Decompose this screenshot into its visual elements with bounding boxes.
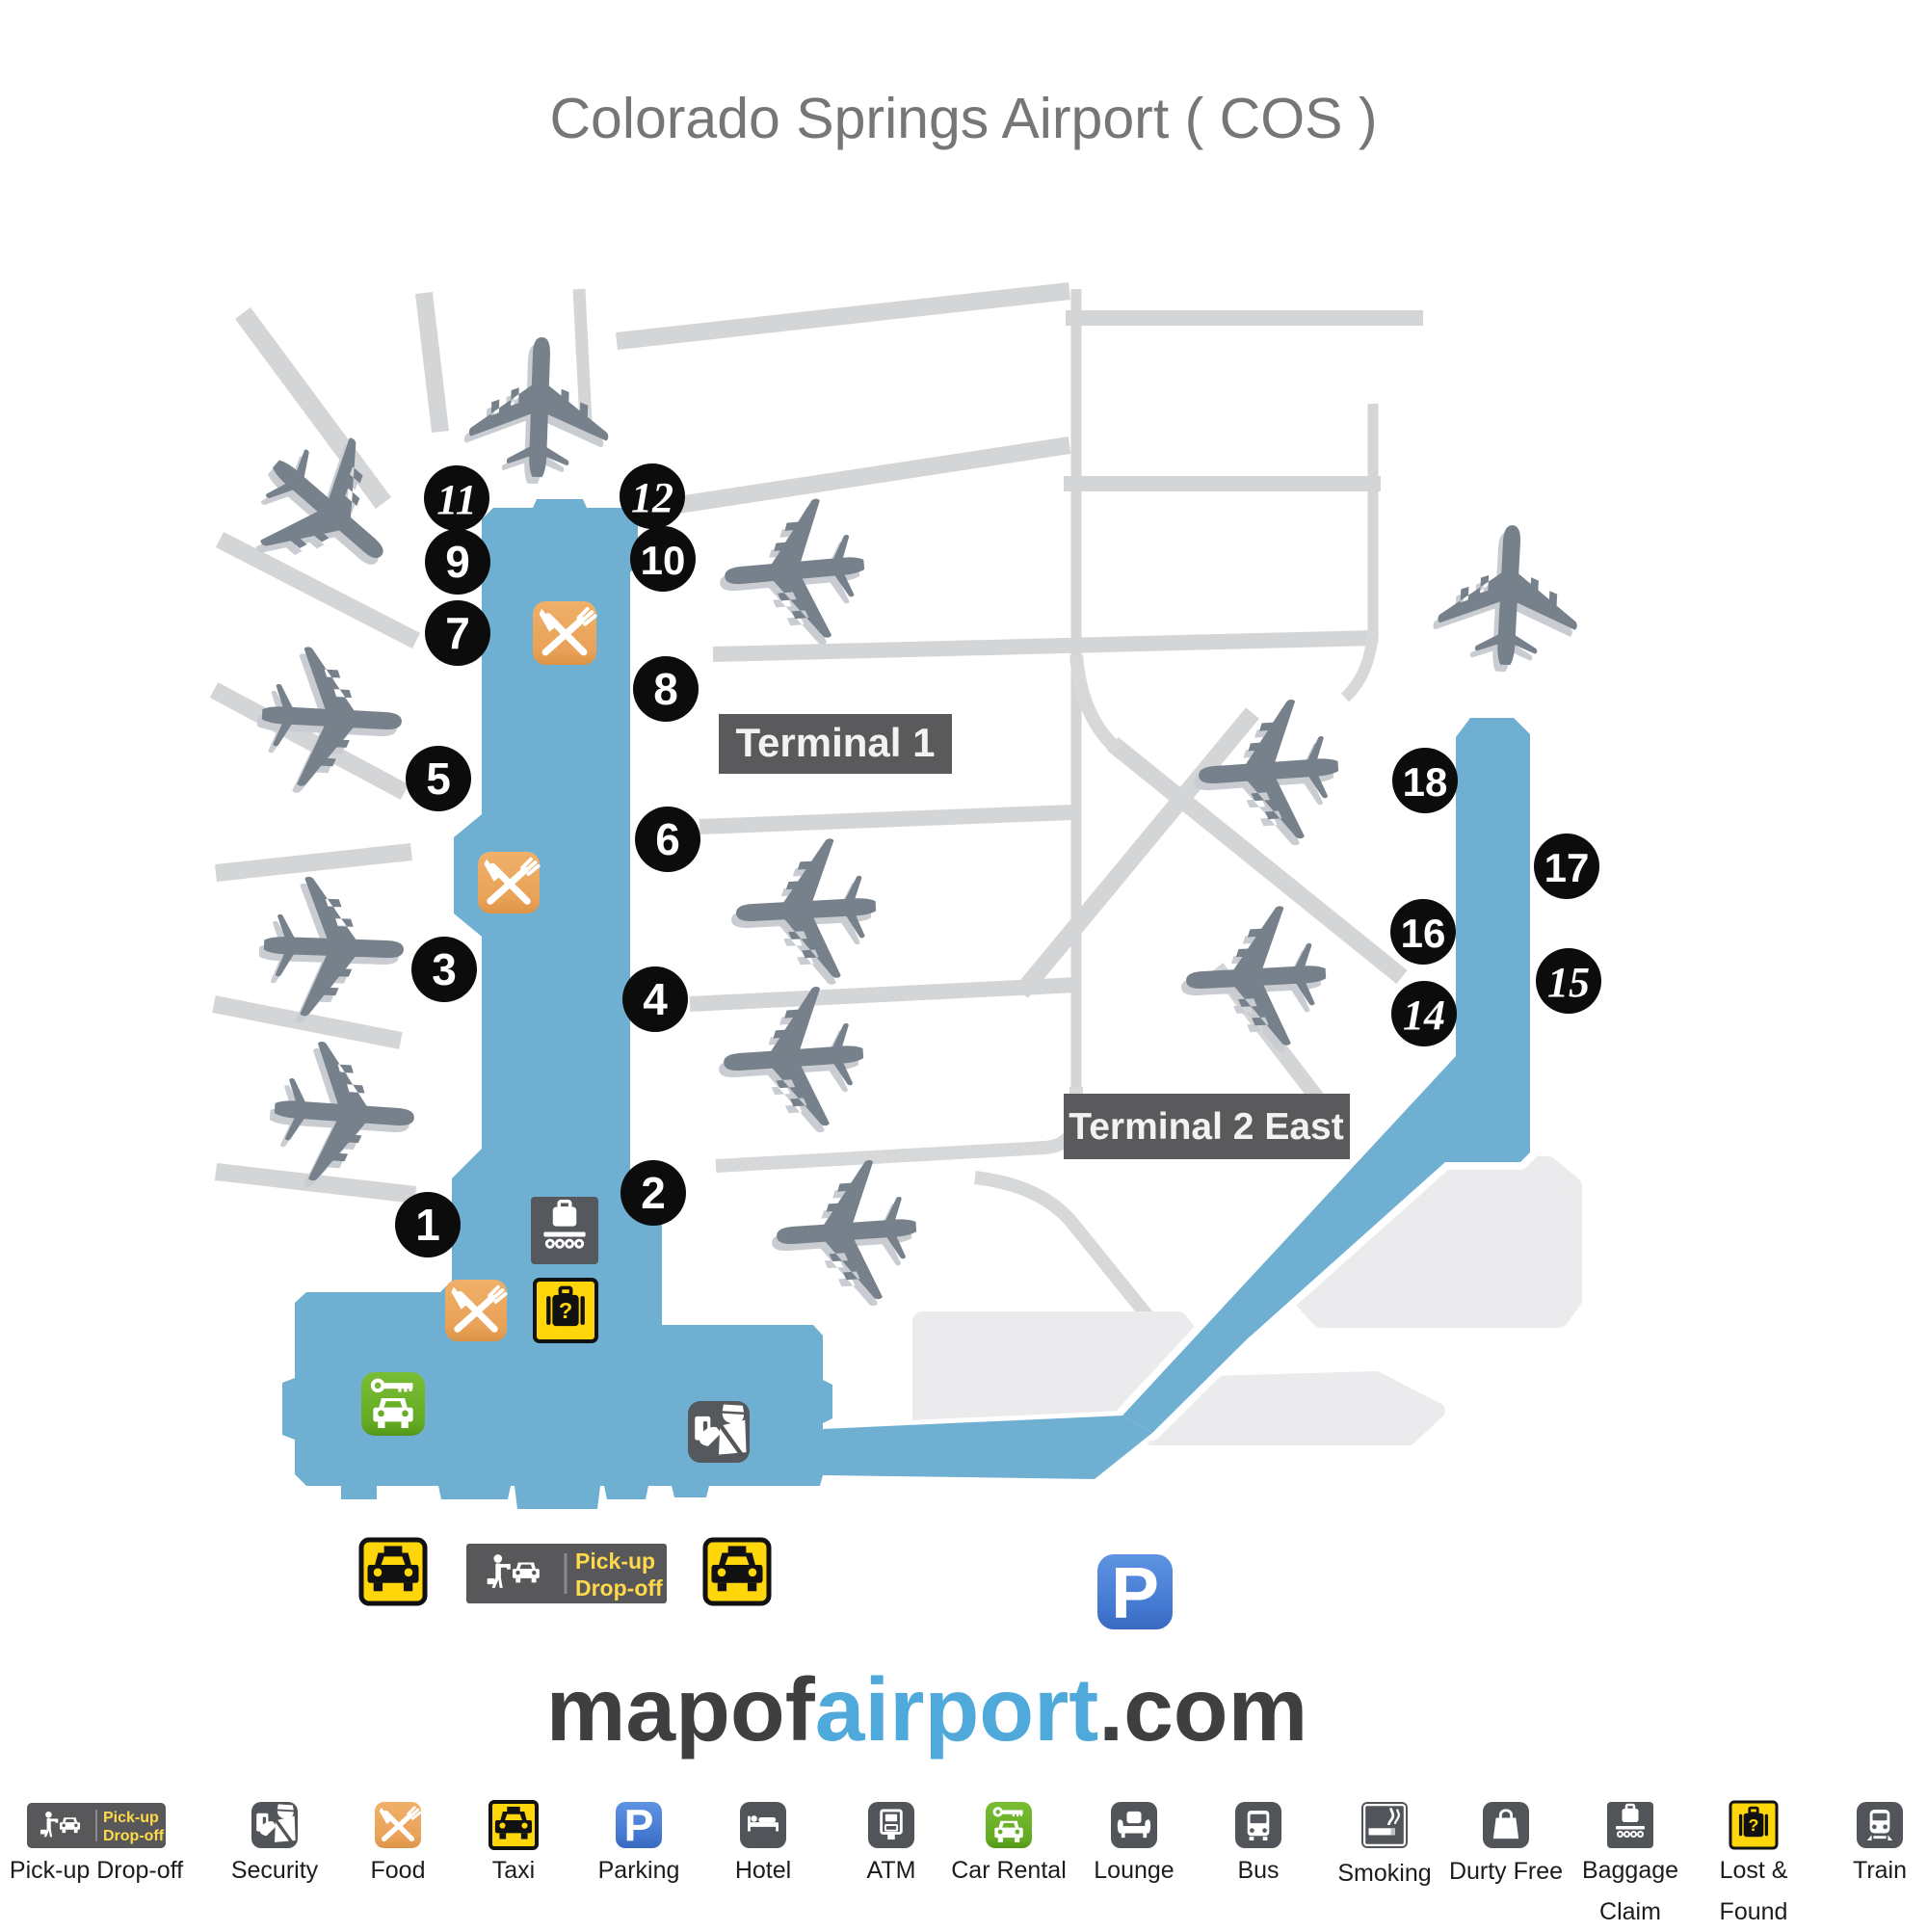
svg-text:12: 12 bbox=[631, 474, 673, 521]
svg-text:6: 6 bbox=[655, 814, 680, 864]
svg-text:Car Rental: Car Rental bbox=[951, 1857, 1067, 1884]
svg-text:Lounge: Lounge bbox=[1094, 1857, 1174, 1884]
svg-text:3: 3 bbox=[432, 944, 457, 994]
svg-text:15: 15 bbox=[1547, 959, 1590, 1006]
svg-text:Food: Food bbox=[371, 1857, 426, 1884]
svg-text:10: 10 bbox=[641, 538, 686, 583]
svg-text:14: 14 bbox=[1403, 992, 1445, 1039]
svg-text:4: 4 bbox=[643, 974, 668, 1024]
svg-text:mapofairport.com: mapofairport.com bbox=[546, 1659, 1308, 1760]
svg-text:5: 5 bbox=[426, 754, 451, 804]
svg-text:Baggage: Baggage bbox=[1582, 1857, 1678, 1884]
svg-text:9: 9 bbox=[445, 537, 470, 587]
svg-text:7: 7 bbox=[445, 608, 470, 658]
svg-text:Security: Security bbox=[231, 1857, 319, 1884]
svg-text:Hotel: Hotel bbox=[735, 1857, 791, 1884]
svg-text:Bus: Bus bbox=[1237, 1857, 1279, 1884]
svg-text:Found: Found bbox=[1720, 1898, 1788, 1925]
svg-text:Terminal 2 East: Terminal 2 East bbox=[1069, 1106, 1343, 1148]
svg-text:Pick-up: Pick-up bbox=[575, 1548, 655, 1574]
svg-text:Claim: Claim bbox=[1599, 1898, 1661, 1925]
svg-text:Pick-up: Pick-up bbox=[103, 1810, 159, 1826]
svg-text:Smoking: Smoking bbox=[1337, 1860, 1431, 1887]
svg-text:Colorado Springs Airport ( COS: Colorado Springs Airport ( COS ) bbox=[549, 87, 1377, 150]
svg-text:Drop-off: Drop-off bbox=[575, 1575, 663, 1601]
svg-text:2: 2 bbox=[641, 1168, 666, 1218]
svg-text:Lost &: Lost & bbox=[1720, 1857, 1788, 1884]
svg-text:Drop-off: Drop-off bbox=[103, 1828, 165, 1844]
svg-text:Durty Free: Durty Free bbox=[1449, 1858, 1563, 1885]
svg-text:16: 16 bbox=[1401, 911, 1446, 956]
svg-text:18: 18 bbox=[1403, 759, 1448, 805]
svg-text:Terminal 1: Terminal 1 bbox=[736, 720, 936, 765]
svg-text:ATM: ATM bbox=[867, 1857, 916, 1884]
svg-text:Parking: Parking bbox=[598, 1857, 680, 1884]
svg-text:Pick-up Drop-off: Pick-up Drop-off bbox=[10, 1857, 183, 1884]
svg-text:Train: Train bbox=[1853, 1857, 1907, 1884]
svg-text:8: 8 bbox=[653, 664, 678, 714]
svg-text:Taxi: Taxi bbox=[492, 1857, 535, 1884]
svg-text:11: 11 bbox=[436, 476, 477, 523]
svg-text:1: 1 bbox=[415, 1200, 440, 1250]
svg-text:17: 17 bbox=[1544, 845, 1590, 890]
